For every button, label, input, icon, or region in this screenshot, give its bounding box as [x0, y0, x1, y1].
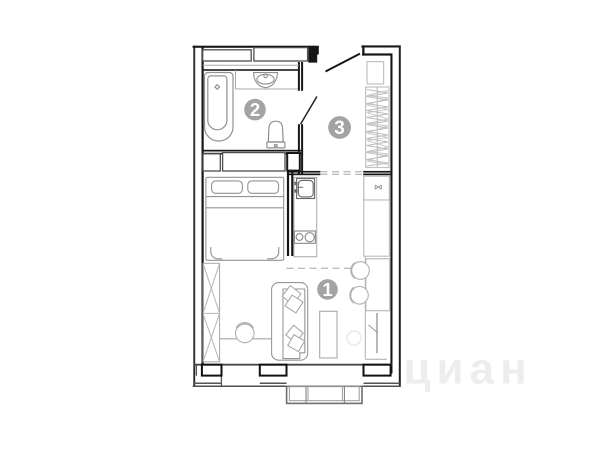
svg-text:циан: циан: [404, 345, 533, 394]
svg-text:3: 3: [334, 118, 345, 139]
svg-text:1: 1: [322, 279, 332, 300]
svg-text:2: 2: [250, 99, 260, 120]
